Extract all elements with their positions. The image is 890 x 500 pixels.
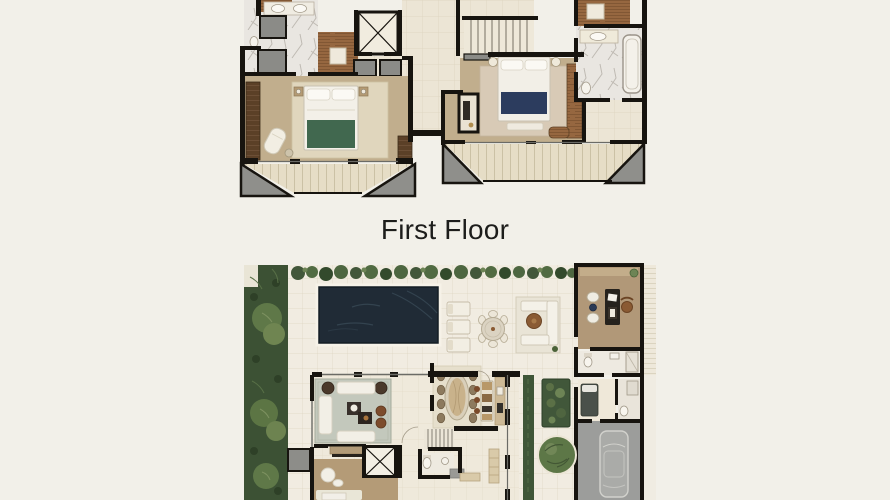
bar-stool <box>474 386 480 392</box>
powder-room <box>420 453 454 473</box>
sofa <box>337 382 375 394</box>
side-pergola <box>642 265 656 375</box>
wardrobe <box>246 82 260 160</box>
utility-shaft <box>380 60 401 76</box>
floor-caption: First Floor <box>0 215 890 246</box>
potted-plant <box>552 346 558 352</box>
bar-stool <box>474 408 480 414</box>
bed-partial <box>322 493 346 500</box>
elevator-first-floor <box>362 445 398 478</box>
tv-console <box>330 446 364 454</box>
first-floor-plan <box>242 263 658 500</box>
office-chair <box>622 302 633 313</box>
sun-loungers <box>447 302 470 352</box>
staircase <box>462 16 538 54</box>
utility-shaft <box>260 16 286 38</box>
leather-pouf <box>376 406 386 416</box>
car <box>600 431 628 497</box>
upper-floor-plan <box>230 0 658 205</box>
staff-bathroom <box>618 379 640 421</box>
balcony-left <box>241 164 415 196</box>
swimming-pool <box>317 285 440 345</box>
double-vanity <box>264 2 314 15</box>
bathroom-right <box>576 26 642 100</box>
staircase-first-floor <box>424 429 454 449</box>
upper-floor-plan-drawing <box>230 0 658 205</box>
side-garden <box>244 265 288 500</box>
bedroom-suite-left <box>240 0 415 196</box>
side-table <box>285 149 293 157</box>
sofa <box>337 431 375 442</box>
round-pouf <box>375 382 387 394</box>
guest-chair <box>587 313 599 323</box>
fireplace-niche <box>459 94 478 132</box>
first-floor-plan-drawing <box>242 263 658 500</box>
garage <box>578 421 640 500</box>
guest-chair <box>587 292 599 302</box>
utility-shaft <box>288 449 310 471</box>
sofa <box>319 396 332 434</box>
floorplan-page: First Floor <box>0 0 890 500</box>
cabinet <box>460 473 480 481</box>
balcony-right <box>443 144 644 183</box>
nightstand <box>552 58 561 67</box>
living-room <box>315 379 391 443</box>
kitchen-counter <box>495 377 505 425</box>
elevator <box>358 12 398 54</box>
guest-bathroom <box>578 351 640 375</box>
toilet <box>582 82 591 94</box>
staff-room <box>578 379 616 421</box>
house-interior <box>288 363 520 500</box>
outdoor-dining <box>479 311 508 348</box>
leather-pouf <box>376 418 386 428</box>
bed-navy-throw <box>498 57 550 130</box>
nightstand <box>489 58 498 67</box>
outdoor-lounge <box>516 297 560 353</box>
study <box>578 267 640 349</box>
bar-stool <box>474 397 480 403</box>
courtyard-tree <box>538 436 576 474</box>
toilet <box>250 37 258 48</box>
tall-cabinet <box>489 449 499 483</box>
bed-green-throw <box>304 86 358 150</box>
lounge-chair <box>321 468 335 482</box>
round-pouf <box>322 382 334 394</box>
closet-right <box>574 0 630 26</box>
right-wing <box>574 263 644 500</box>
potted-plant <box>630 269 638 277</box>
